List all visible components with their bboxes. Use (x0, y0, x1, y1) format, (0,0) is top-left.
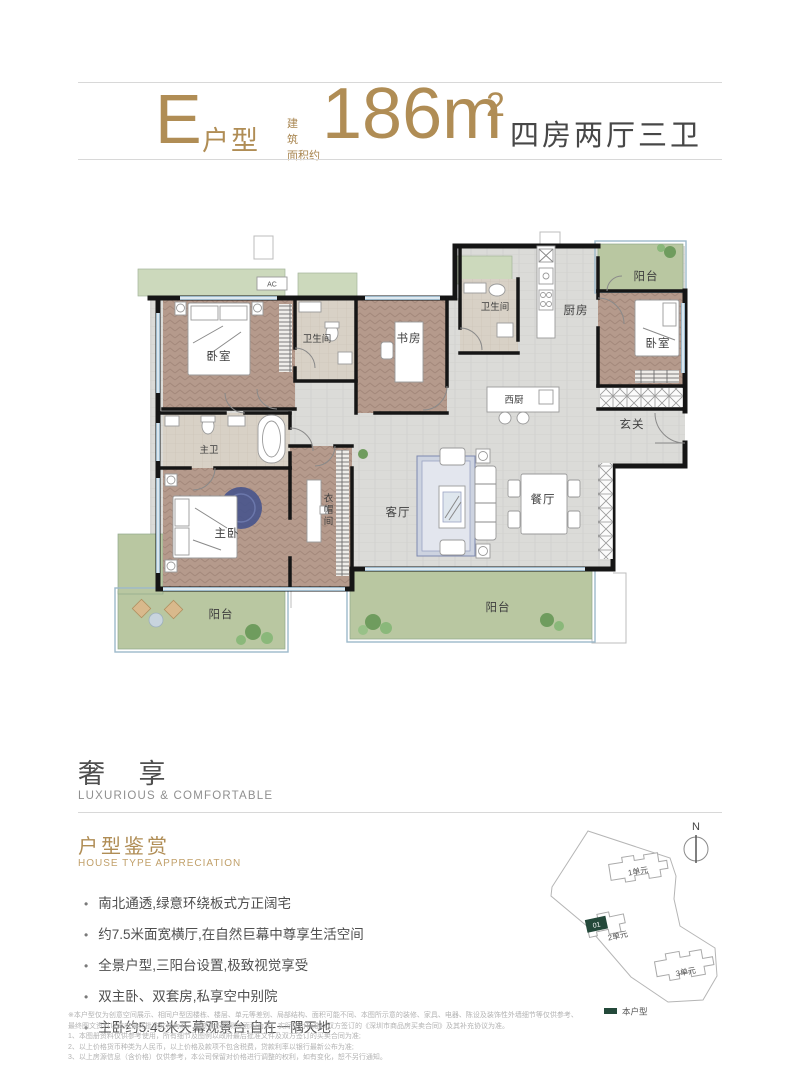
feature-text: 南北通透,绿意环绕板式方正阔宅 (98, 892, 291, 912)
area-superscript: 2 (486, 86, 505, 125)
appreciation-title-cn: 户型鉴赏 (78, 830, 170, 859)
label-master-bedroom: 主卧 (215, 527, 240, 540)
appreciation-title-en: HOUSE TYPE APPRECIATION (78, 858, 241, 869)
unit-type-letter: E (155, 84, 202, 154)
bullet-icon: • (84, 928, 88, 942)
label-balcony-center: 阳台 (486, 600, 511, 614)
room-spec: 四房两厅三卫 (510, 112, 702, 154)
feature-item: •约7.5米面宽横厅,在自然巨幕中尊享生活空间 (84, 923, 364, 943)
disclaimer-line: 1、本图册资料仅供参考使用，所有细节及图例以政府最后批准文件及双方签订的买卖合同… (68, 1032, 728, 1043)
label-foyer: 玄关 (620, 417, 645, 431)
legend-label: 本户型 (622, 1007, 648, 1017)
area-prefix-line2: 面积约 (287, 148, 327, 164)
label-balcony-top: 阳台 (634, 269, 659, 283)
label-dining-room: 餐厅 (531, 492, 556, 506)
section-title-cn: 奢 享 (78, 752, 179, 791)
divider-mid (78, 159, 722, 160)
north-label: N (692, 821, 700, 833)
divider-low (78, 812, 722, 813)
site-legend: 本户型 (604, 1007, 648, 1017)
label-bath-second: 卫生间 (481, 301, 510, 313)
feature-text: 约7.5米面宽横厅,在自然巨幕中尊享生活空间 (98, 923, 364, 943)
label-master-bath: 主卫 (199, 444, 219, 456)
legend-swatch (604, 1008, 617, 1014)
label-bedroom-top-left: 卧室 (207, 349, 232, 363)
feature-item: •全景户型,三阳台设置,极致视觉享受 (84, 954, 364, 974)
feature-item: •双主卧、双套房,私享空中别院 (84, 985, 364, 1005)
label-study: 书房 (397, 332, 422, 345)
label-kitchen: 厨房 (564, 304, 589, 317)
section-title-en: LUXURIOUS & COMFORTABLE (78, 790, 273, 802)
feature-text: 双主卧、双套房,私享空中别院 (98, 985, 277, 1005)
label-bedroom-right: 卧室 (646, 336, 671, 350)
label-bath-guest: 卫生间 (303, 333, 332, 345)
label-living-room: 客厅 (386, 505, 411, 519)
label-ac: AC (267, 282, 277, 289)
site-plan: N 1单元 01 2单元 3单元 本户型 (538, 816, 763, 1031)
label-balcony-left: 阳台 (209, 607, 234, 621)
bullet-icon: • (84, 959, 88, 973)
north-compass: N (684, 821, 708, 863)
floor-plan: 卧室 卫生间 书房 卫生间 厨房 阳台 卧室 西厨 玄关 主卫 主卧 衣帽间 客… (95, 228, 715, 658)
bullet-icon: • (84, 990, 88, 1004)
feature-item: •南北通透,绿意环绕板式方正阔宅 (84, 892, 364, 912)
building-2: 01 2单元 (584, 909, 629, 947)
brochure-page: E 户型 建 筑 面积约 186m 2 四房两厅三卫 (0, 0, 800, 1085)
label-cloakroom: 衣帽间 (322, 492, 334, 527)
area-prefix-line1: 建 筑 (287, 116, 327, 148)
area-value: 186m (322, 78, 502, 150)
disclaimer-line: 3、以上房源信息（含价格）仅供参考，本公司保留对价格进行调整的权利，如有变化，恕… (68, 1053, 728, 1064)
building-1: 1单元 (608, 851, 669, 885)
bullet-icon: • (84, 897, 88, 911)
disclaimer-line: 2、以上价格货币种类为人民币，以上价格及款项不包含税费，贷款利率以银行最新公布为… (68, 1043, 728, 1054)
unit-type-suffix: 户型 (202, 119, 260, 158)
area-prefix: 建 筑 面积约 (287, 116, 327, 164)
feature-text: 全景户型,三阳台设置,极致视觉享受 (98, 954, 308, 974)
building-3: 3单元 (653, 946, 715, 983)
label-west-kitchen: 西厨 (504, 395, 524, 406)
